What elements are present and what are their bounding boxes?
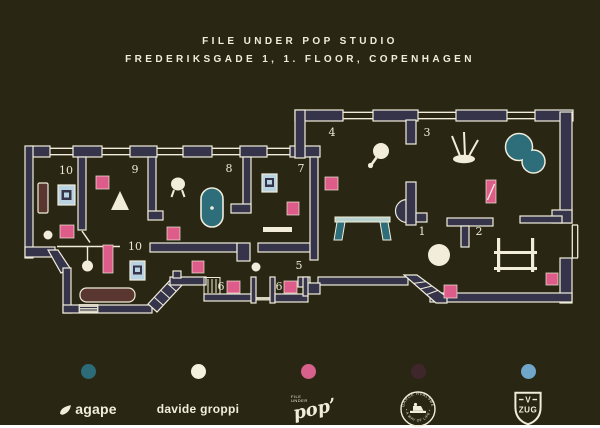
legend-dot-davide-groppi — [191, 364, 206, 379]
walls — [25, 110, 578, 313]
room-label-6: 6 — [276, 280, 283, 293]
pool-room3 — [506, 134, 546, 174]
brand-column-pop: FILE UNDER pop’ — [248, 364, 368, 426]
dot-room10-left — [44, 231, 53, 240]
agape-label: agape — [75, 401, 116, 417]
leaf-icon — [59, 404, 72, 415]
pink-cabinet-room6b — [284, 281, 297, 293]
vzug-shield-icon: V ZUG — [511, 391, 545, 427]
pink-cabinet-hall — [192, 261, 204, 273]
brown-bench-room10-left — [38, 183, 48, 213]
room-label-2: 2 — [476, 225, 483, 238]
lamp-room8 — [171, 178, 185, 198]
table-room4 — [334, 217, 391, 240]
table-room2 — [494, 238, 537, 272]
room-label-6: 6 — [218, 280, 225, 293]
pink-cabinet-room4 — [325, 177, 338, 190]
pink-cabinet-room6a — [227, 281, 240, 293]
ball-lamp-room1 — [428, 244, 450, 266]
pink-mirror-room3 — [486, 180, 496, 203]
brand-column-garde-hvalsoe: GARDE HVALSØE • A WAY OF LIFE • — [358, 364, 478, 426]
floor-plan: 10987431256610 — [0, 0, 600, 425]
brand-column-agape: agape — [28, 364, 148, 426]
balloon-lamp-room10-bottom — [82, 247, 93, 272]
room-label-8: 8 — [226, 162, 233, 175]
davide-groppi-logo: davide groppi — [157, 392, 240, 426]
brand-column-davide-groppi: davide groppi — [138, 364, 258, 426]
shelf-room7 — [263, 227, 292, 232]
room-label-5: 5 — [296, 259, 303, 272]
pink-cabinet-room1 — [444, 285, 457, 298]
pink-cabinet-room10-left — [60, 225, 74, 238]
pink-sideboard-room10-bottom — [103, 245, 113, 273]
vzug-zug-label: ZUG — [519, 406, 537, 415]
legend-dot-garde-hvalsoe — [411, 364, 426, 379]
blue-artwork-room7 — [262, 174, 277, 192]
garde-ring-top: GARDE HVALSØE — [401, 392, 435, 407]
davide-groppi-label: davide groppi — [157, 402, 240, 416]
room-label-4: 4 — [329, 126, 336, 139]
pink-cabinet-room2 — [546, 273, 558, 285]
blue-stove-room10-bottom — [130, 261, 145, 280]
room-label-7: 7 — [298, 162, 305, 175]
mirror-room4 — [368, 143, 389, 168]
garde-hvalsoe-logo: GARDE HVALSØE • A WAY OF LIFE • — [399, 392, 437, 426]
legend-dot-vzug — [521, 364, 536, 379]
sculpture-room3 — [452, 132, 478, 163]
vzug-logo: V ZUG — [511, 392, 545, 426]
svg-text:GARDE HVALSØE: GARDE HVALSØE — [401, 392, 435, 407]
brand-column-vzug: V ZUG — [468, 364, 588, 426]
room-label-1: 1 — [419, 225, 426, 238]
room-label-3: 3 — [424, 126, 431, 139]
poster: FILE UNDER POP STUDIO FREDERIKSGADE 1, 1… — [0, 0, 600, 425]
legend-dot-pop — [301, 364, 316, 379]
garde-seal-icon: GARDE HVALSØE • A WAY OF LIFE • — [399, 390, 437, 428]
legend-dot-agape — [81, 364, 96, 379]
bathtub-room8 — [201, 188, 223, 227]
pink-cabinet-room8 — [167, 227, 180, 240]
room-label-9: 9 — [132, 163, 139, 176]
room-label-10: 10 — [59, 164, 73, 177]
room-label-10: 10 — [128, 240, 142, 253]
wood-plane-icon — [410, 403, 426, 413]
file-under-pop-logo: FILE UNDER pop’ — [285, 392, 331, 426]
vzug-v-label: V — [525, 396, 531, 405]
dot-hall — [252, 263, 261, 272]
brown-sofa-room10-bottom — [80, 288, 135, 302]
agape-logo: agape — [59, 392, 116, 426]
pink-cabinet-room7 — [287, 202, 299, 215]
cone-lamp-room9 — [111, 191, 129, 210]
blue-stove-room10-left — [58, 185, 75, 205]
pink-cabinet-room9 — [96, 176, 109, 189]
